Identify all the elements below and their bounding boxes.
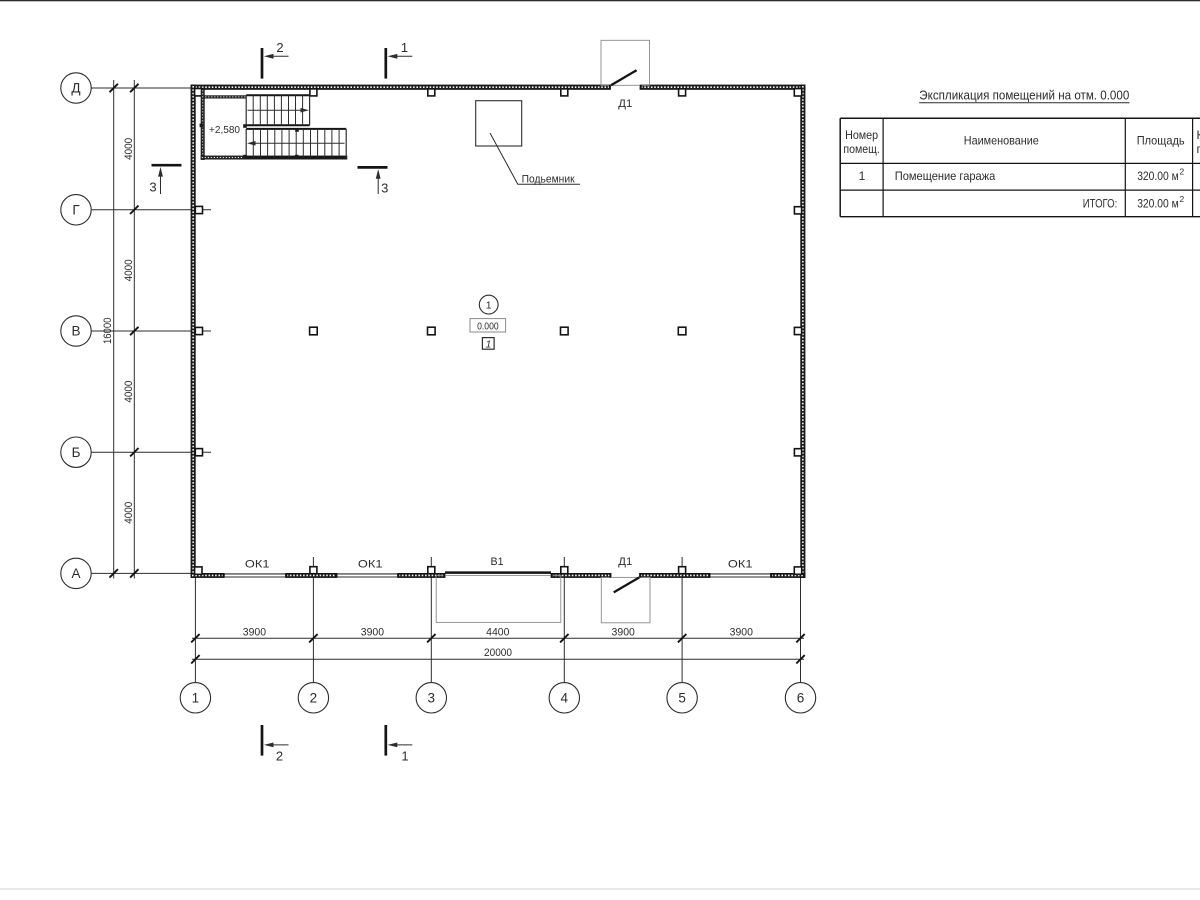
svg-text:Наименование: Наименование: [964, 134, 1039, 148]
svg-text:4000: 4000: [123, 381, 135, 403]
svg-text:0.000: 0.000: [477, 320, 499, 332]
svg-text:ОК1: ОК1: [245, 558, 270, 570]
svg-text:3900: 3900: [612, 626, 635, 638]
svg-text:+2,580: +2,580: [209, 124, 240, 136]
svg-text:1: 1: [859, 169, 866, 183]
svg-text:1: 1: [486, 300, 492, 312]
svg-text:4400: 4400: [486, 626, 509, 638]
svg-text:3: 3: [381, 181, 388, 196]
svg-text:6: 6: [797, 690, 805, 705]
svg-text:Помещение гаража: Помещение гаража: [895, 169, 996, 183]
svg-text:Д: Д: [71, 81, 80, 96]
svg-text:320.00 м: 320.00 м: [1137, 197, 1179, 211]
svg-text:2: 2: [276, 749, 283, 764]
svg-text:Подьемник: Подьемник: [522, 174, 575, 186]
svg-text:2: 2: [310, 690, 318, 705]
svg-text:Д1: Д1: [618, 556, 632, 568]
svg-text:В: В: [71, 324, 80, 339]
svg-text:2: 2: [1180, 194, 1185, 204]
svg-text:Г: Г: [72, 202, 80, 217]
svg-text:20000: 20000: [484, 647, 512, 659]
svg-text:2: 2: [276, 40, 283, 55]
svg-text:Д1: Д1: [618, 98, 632, 110]
svg-text:А: А: [71, 566, 80, 581]
svg-text:Б: Б: [72, 445, 81, 460]
svg-text:5: 5: [678, 690, 686, 705]
svg-text:3900: 3900: [361, 626, 384, 638]
svg-text:пом: пом: [1197, 142, 1200, 156]
svg-text:1: 1: [485, 338, 491, 350]
svg-text:2: 2: [1180, 167, 1185, 177]
svg-text:ОК1: ОК1: [728, 558, 753, 570]
svg-text:1: 1: [192, 690, 200, 705]
svg-text:Площадь: Площадь: [1137, 134, 1185, 148]
svg-text:4000: 4000: [123, 502, 135, 524]
svg-text:1: 1: [401, 749, 408, 764]
svg-text:1: 1: [401, 40, 408, 55]
svg-text:3900: 3900: [730, 626, 753, 638]
svg-text:ОК1: ОК1: [358, 558, 383, 570]
svg-text:4000: 4000: [123, 259, 135, 281]
svg-text:3900: 3900: [243, 626, 266, 638]
svg-text:Экспликация помещений на отм.: Экспликация помещений на отм. 0.000: [919, 88, 1129, 103]
svg-text:320.00 м: 320.00 м: [1137, 169, 1179, 183]
svg-text:4: 4: [561, 690, 569, 705]
svg-text:ИТОГО:: ИТОГО:: [1083, 197, 1118, 211]
svg-text:16000: 16000: [102, 318, 114, 345]
svg-text:3: 3: [149, 180, 156, 195]
svg-text:Номер: Номер: [845, 128, 878, 142]
svg-text:Кат.: Кат.: [1197, 128, 1200, 142]
svg-text:В1: В1: [491, 556, 504, 568]
svg-text:4000: 4000: [123, 138, 135, 160]
svg-text:3: 3: [428, 690, 436, 705]
svg-text:помещ.: помещ.: [843, 142, 880, 156]
